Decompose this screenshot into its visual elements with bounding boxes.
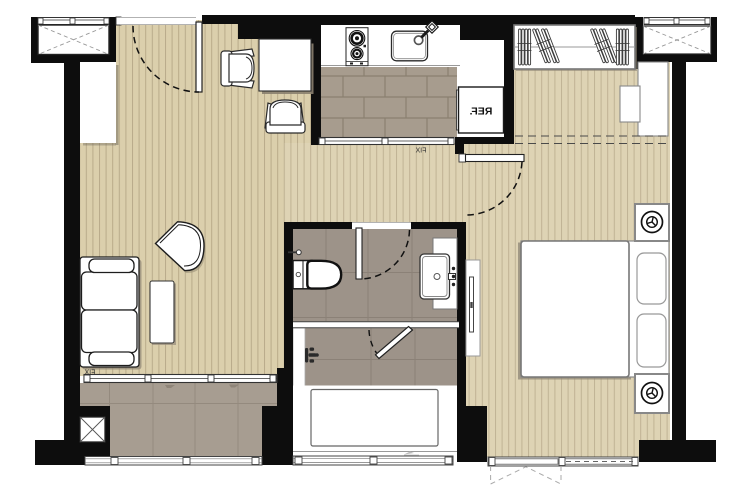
- svg-text:REF.: REF.: [470, 106, 493, 118]
- svg-text:FIX: FIX: [415, 148, 426, 155]
- svg-text:FIX: FIX: [84, 370, 95, 377]
